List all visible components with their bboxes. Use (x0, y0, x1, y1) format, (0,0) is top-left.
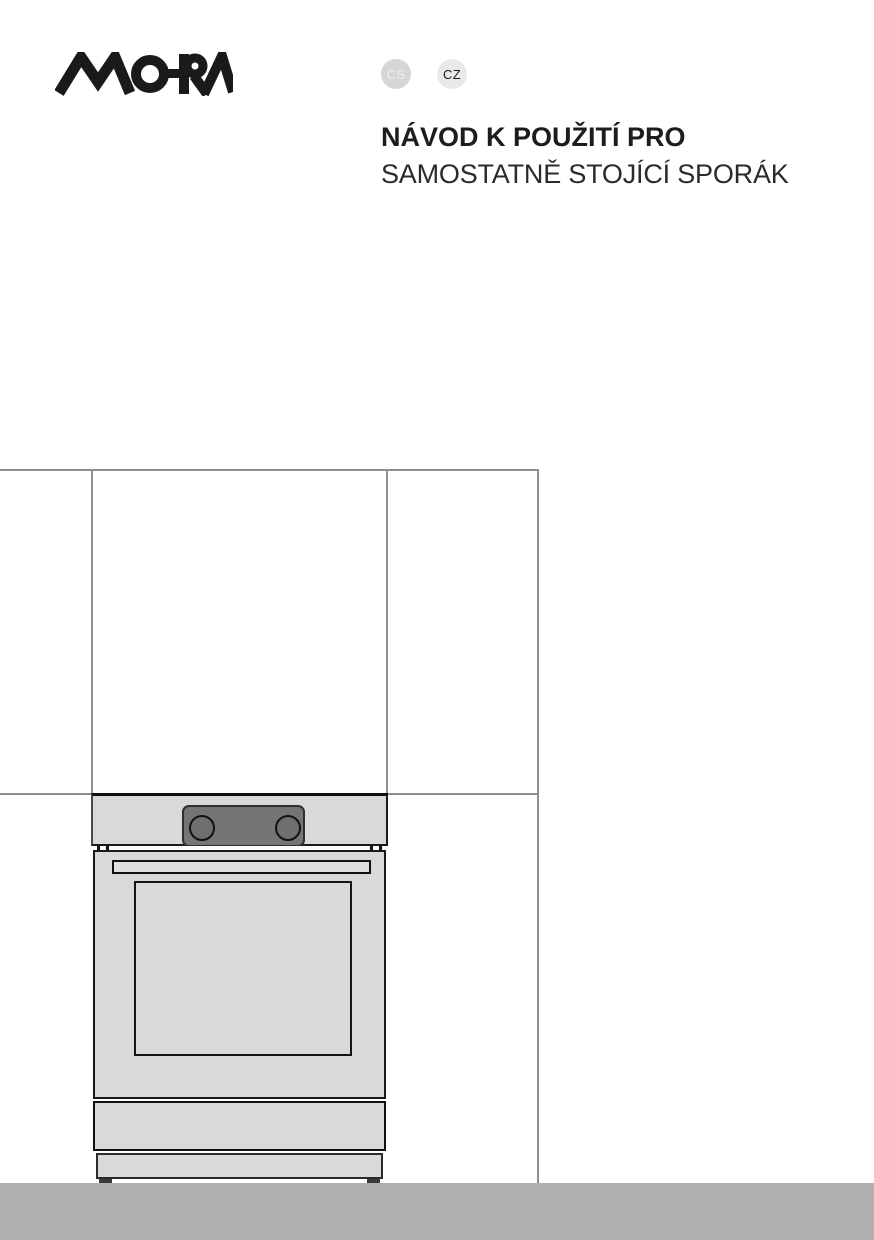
plinth-base (96, 1153, 383, 1179)
manual-cover-page: CS CZ NÁVOD K POUŽITÍ PRO SAMOSTATNĚ STO… (0, 0, 874, 1240)
logo-letter-m (59, 57, 130, 93)
page-title-line1: NÁVOD K POUŽITÍ PRO (381, 124, 686, 151)
logo-dash (165, 69, 181, 78)
wall-top-line (0, 469, 539, 471)
control-knob-right (275, 815, 301, 841)
control-panel (182, 805, 305, 847)
control-knob-left (189, 815, 215, 841)
cooktop-section (91, 793, 388, 846)
storage-drawer (93, 1101, 386, 1151)
niche-left-line (91, 469, 93, 795)
mora-logo (55, 52, 233, 96)
language-badge-cs: CS (381, 59, 411, 89)
language-badge-cs-label: CS (387, 67, 406, 82)
language-badge-cz: CZ (437, 59, 467, 89)
language-badge-cz-label: CZ (443, 67, 461, 82)
logo-letter-a (204, 56, 233, 94)
oven-door (93, 850, 386, 1099)
floor-bar (0, 1183, 874, 1240)
oven-door-window (134, 881, 352, 1056)
niche-right-line (386, 469, 388, 795)
freestanding-cooker (91, 792, 388, 1184)
page-title-line2: SAMOSTATNĚ STOJÍCÍ SPORÁK (381, 161, 789, 188)
counter-right-line (388, 793, 538, 795)
logo-letter-r-bowl (187, 58, 203, 74)
oven-door-handle (112, 860, 371, 874)
cabinet-right-line (537, 469, 539, 1184)
counter-left-line (0, 793, 91, 795)
logo-letter-o (136, 60, 164, 88)
